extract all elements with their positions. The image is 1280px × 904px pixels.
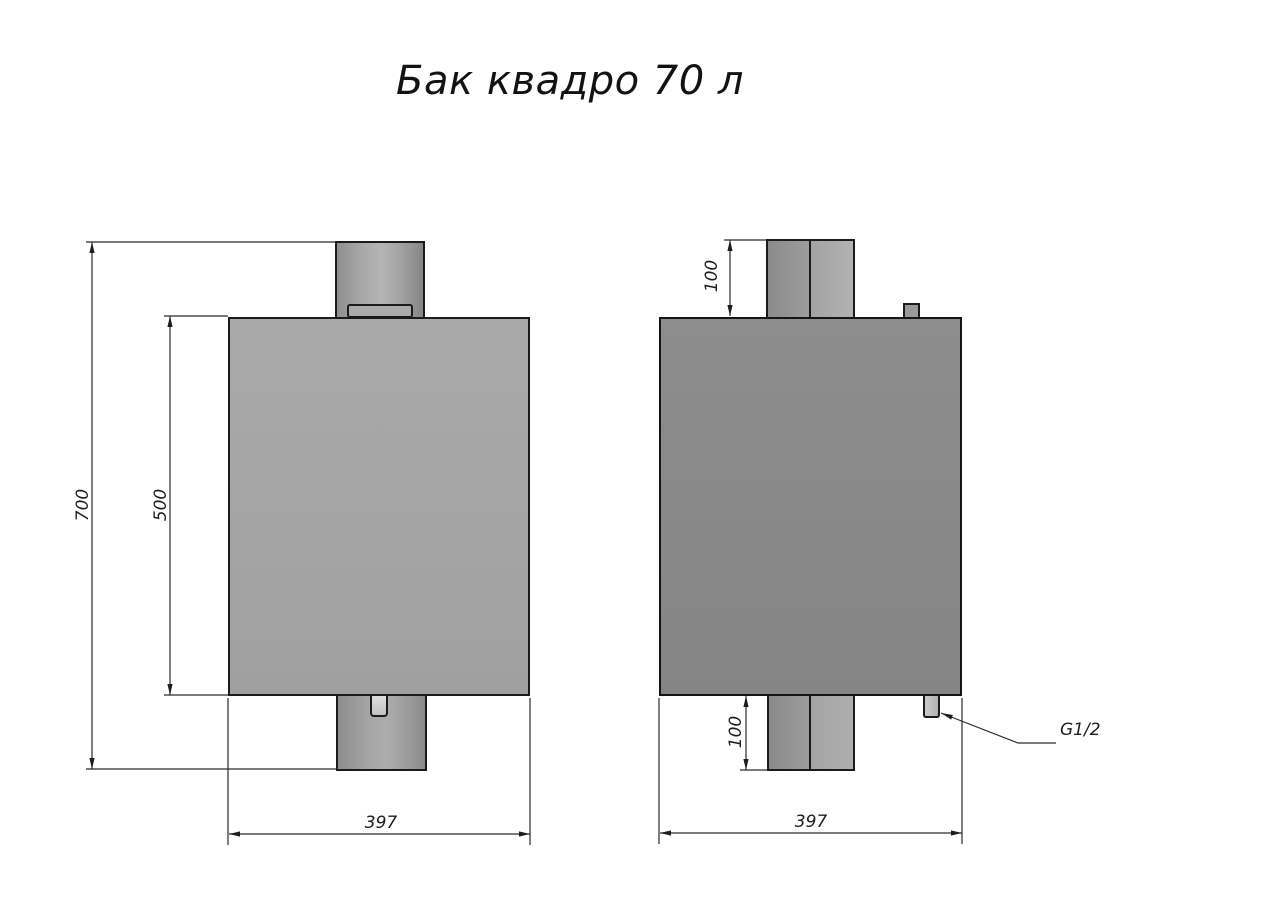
arrow-500-up	[167, 316, 172, 327]
drawing-title: Бак квадро 70 л	[370, 58, 770, 104]
dim-label-width-front: 397	[351, 813, 411, 833]
side-chimney-pipe-divider	[809, 239, 811, 317]
side-drain-pipe	[767, 696, 855, 771]
arrow-397-front-left	[229, 831, 240, 836]
arrow-397-side-right	[951, 830, 962, 835]
arrow-100-top-down	[727, 305, 732, 316]
side-drain-pipe-divider	[809, 696, 811, 769]
arrow-500-down	[167, 684, 172, 695]
front-drain-notch	[370, 696, 388, 717]
side-g12-fitting	[923, 696, 940, 718]
drawing-canvas: Бак квадро 70 л	[0, 0, 1280, 904]
dimension-lines	[0, 0, 1280, 904]
arrow-700-down	[89, 758, 94, 769]
side-top-fitting	[903, 303, 920, 318]
arrow-leader-g12	[941, 713, 953, 720]
leader-line-g12	[941, 713, 1056, 743]
dim-label-bottom-pipe-offset: 100	[726, 702, 746, 762]
arrow-700-up	[89, 242, 94, 253]
arrow-397-front-right	[519, 831, 530, 836]
arrow-100-top-up	[727, 240, 732, 251]
side-tank-body	[659, 317, 962, 696]
dim-label-top-pipe-offset: 100	[702, 246, 722, 306]
dim-label-total-height: 700	[73, 475, 93, 535]
dim-label-width-side: 397	[781, 812, 841, 832]
front-tank-body	[228, 317, 530, 696]
dim-label-body-height: 500	[151, 475, 171, 535]
front-pipe-collar	[347, 304, 413, 318]
fitting-thread-label: G1/2	[1060, 720, 1101, 740]
arrow-397-side-left	[660, 830, 671, 835]
